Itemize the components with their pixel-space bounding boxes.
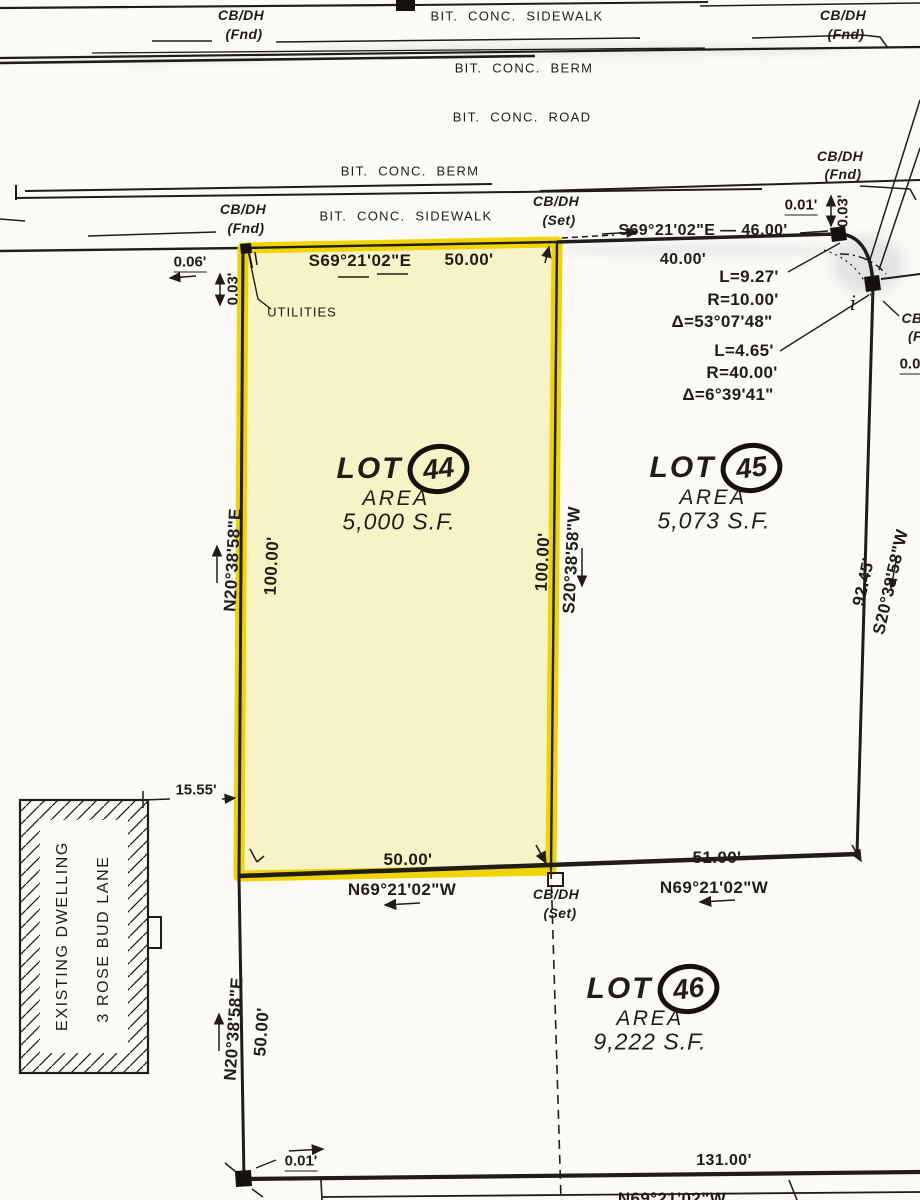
- cbdh-set-sub-bottom: (Set): [543, 905, 576, 921]
- lot44-top-dist: 50.00': [445, 250, 494, 270]
- dwelling-address-label: 3 ROSE BUD LANE: [95, 855, 113, 1022]
- curve2-radius: R=40.00': [706, 363, 777, 383]
- utilities-label: UTILITIES: [267, 305, 337, 320]
- dwelling-name-label: EXISTING DWELLING: [54, 841, 72, 1031]
- lot44-left-dist: 100.00': [260, 536, 283, 596]
- road-label: BIT. CONC. ROAD: [453, 110, 592, 125]
- cbdh-found-label-top-left: CB/DH: [218, 7, 264, 23]
- lot46-word: LOT: [587, 972, 653, 1006]
- lot44-right-dist: 100.00': [531, 532, 554, 592]
- cbdh-found-sub-top-right: (Fnd): [828, 26, 865, 42]
- offset-001-bottom: 0.01': [285, 1153, 318, 1172]
- lot45-bottom-bearing: N69°21'02"W: [660, 878, 768, 898]
- survey-plat-document: BIT. CONC. SIDEWALK BIT. CONC. BERM BIT.…: [0, 0, 920, 1200]
- dwelling-setback-dim: 15.55': [175, 782, 216, 799]
- dwelling-footprint: [20, 800, 161, 1073]
- berm-mid-label: BIT. CONC. BERM: [341, 164, 480, 179]
- clipped-offset-dim: 0.0: [900, 356, 920, 375]
- lot44-highlight: [239, 242, 557, 876]
- offset-001-top: 0.01': [785, 197, 818, 216]
- offset-003-top: 0.03': [835, 195, 852, 228]
- cbdh-found-label-top-right: CB/DH: [820, 7, 866, 23]
- lot46-bottom-dist: 131.00': [696, 1152, 752, 1170]
- clipped-cbdh-label: CB: [901, 310, 920, 326]
- cbdh-set-sub-top: (Set): [542, 212, 575, 228]
- sidewalk-top-label: BIT. CONC. SIDEWALK: [431, 9, 604, 24]
- lot46-bottom-bearing-clipped: N69°21'02"W: [618, 1189, 726, 1200]
- lot44-bottom-dist: 50.00': [384, 850, 433, 870]
- cbdh-found-sub-top-left: (Fnd): [226, 26, 263, 42]
- offset-003-left: 0.03': [225, 273, 242, 306]
- segment-40-dist: 40.00': [660, 251, 706, 269]
- cbdh-found-label-right-mid: CB/DH: [817, 148, 863, 164]
- lot45-area-label: AREA: [679, 486, 746, 510]
- clipped-fnd-label: (F: [908, 328, 920, 344]
- berm-top-label: BIT. CONC. BERM: [455, 61, 594, 76]
- iron-pin-label: i: [850, 291, 856, 315]
- plat-linework: [0, 0, 920, 1200]
- cbdh-found-sub-left-mid: (Fnd): [228, 220, 265, 236]
- curve1-length: L=9.27': [719, 267, 779, 287]
- curve2-delta: Δ=6°39'41": [682, 385, 773, 405]
- lot46-left-dist: 50.00': [250, 1007, 273, 1057]
- lot44-top-bearing: S69°21'02"E: [309, 251, 412, 271]
- lot44-area-value: 5,000 S.F.: [342, 509, 455, 536]
- curve1-radius: R=10.00': [707, 290, 778, 310]
- curve1-delta: Δ=53°07'48": [671, 312, 772, 332]
- curve2-length: L=4.65': [714, 341, 774, 361]
- lot45-bottom-dist: 51.00': [693, 848, 742, 868]
- lot44-word: LOT: [337, 452, 403, 486]
- lot45-word: LOT: [650, 451, 716, 485]
- cbdh-found-sub-right-mid: (Fnd): [825, 166, 862, 182]
- cbdh-set-label-bottom: CB/DH: [533, 886, 579, 902]
- offset-006-left: 0.06': [174, 254, 207, 273]
- lot45-area-value: 5,073 S.F.: [657, 508, 770, 535]
- lot46-area-value: 9,222 S.F.: [593, 1029, 706, 1056]
- lot44-area-label: AREA: [362, 487, 429, 511]
- cbdh-set-label-top: CB/DH: [533, 193, 579, 209]
- cbdh-found-label-left-mid: CB/DH: [220, 201, 266, 217]
- north-line-45-bearing: S69°21'02"E — 46.00': [618, 222, 787, 240]
- sidewalk-mid-label: BIT. CONC. SIDEWALK: [320, 209, 493, 224]
- lot44-bottom-bearing: N69°21'02"W: [348, 880, 456, 900]
- lot46-area-label: AREA: [616, 1007, 683, 1031]
